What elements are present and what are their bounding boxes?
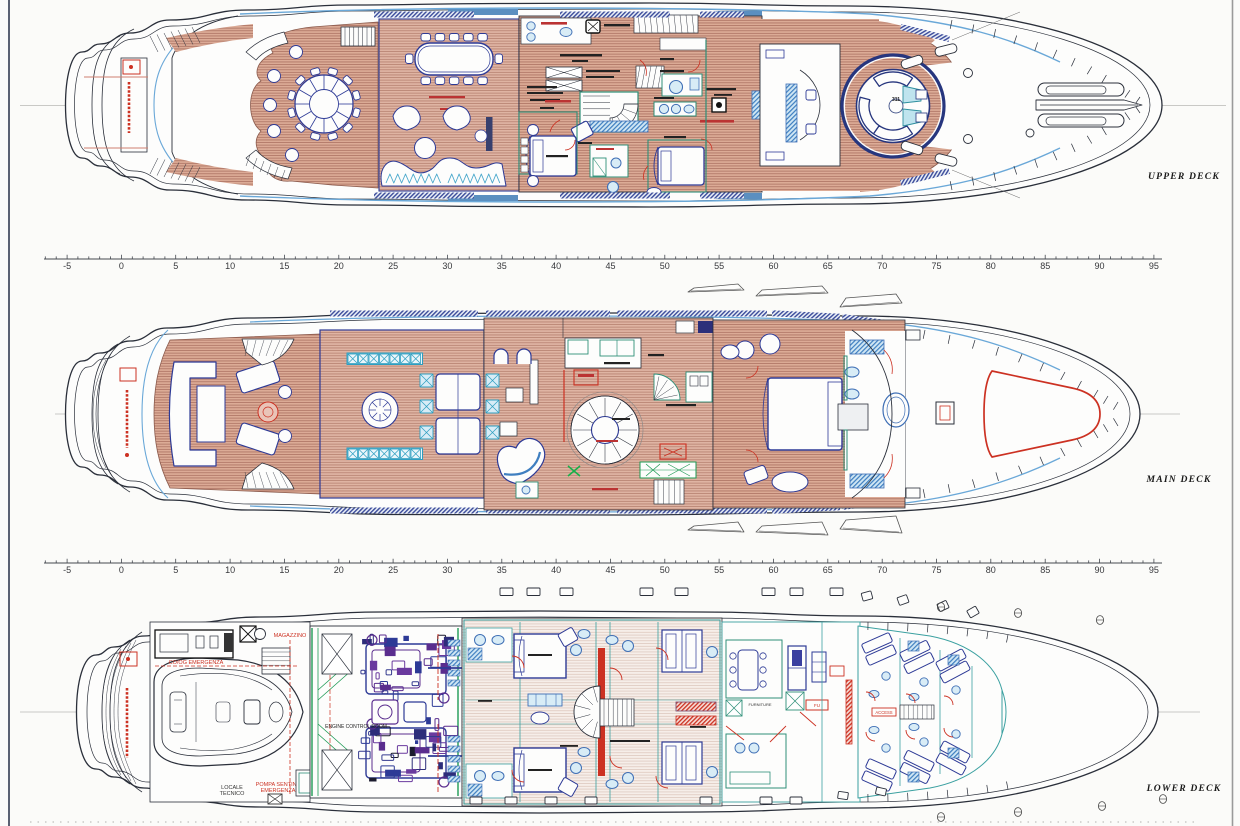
svg-text:15: 15 <box>279 261 289 271</box>
svg-text:-5: -5 <box>63 261 71 271</box>
svg-text:55: 55 <box>714 261 724 271</box>
svg-text:-5: -5 <box>63 565 71 575</box>
svg-text:ENGINE CONTROL ROOM: ENGINE CONTROL ROOM <box>325 724 387 730</box>
svg-text:50: 50 <box>660 261 670 271</box>
svg-text:40: 40 <box>551 565 561 575</box>
svg-text:35: 35 <box>497 565 507 575</box>
svg-text:MAIN DECK: MAIN DECK <box>1146 474 1212 485</box>
svg-text:60: 60 <box>768 261 778 271</box>
svg-text:45: 45 <box>605 565 615 575</box>
svg-text:80: 80 <box>986 565 996 575</box>
svg-text:25: 25 <box>388 261 398 271</box>
svg-text:85: 85 <box>1040 261 1050 271</box>
svg-text:15: 15 <box>279 565 289 575</box>
svg-text:30: 30 <box>442 565 452 575</box>
svg-text:CO/OG EMERGENZA: CO/OG EMERGENZA <box>169 660 224 666</box>
svg-text:95: 95 <box>1149 565 1159 575</box>
svg-text:20: 20 <box>334 261 344 271</box>
svg-text:75: 75 <box>931 565 941 575</box>
svg-text:TECNICO: TECNICO <box>220 791 245 797</box>
svg-text:311: 311 <box>892 97 900 103</box>
svg-text:95: 95 <box>1149 261 1159 271</box>
svg-text:FU: FU <box>814 703 820 708</box>
svg-text:0: 0 <box>119 261 124 271</box>
svg-text:30: 30 <box>442 261 452 271</box>
svg-text:65: 65 <box>823 261 833 271</box>
svg-text:60: 60 <box>768 565 778 575</box>
svg-text:65: 65 <box>823 565 833 575</box>
svg-text:0: 0 <box>119 565 124 575</box>
svg-text:55: 55 <box>714 565 724 575</box>
svg-text:70: 70 <box>877 261 887 271</box>
svg-text:40: 40 <box>551 261 561 271</box>
svg-text:10: 10 <box>225 565 235 575</box>
svg-text:80: 80 <box>986 261 996 271</box>
svg-text:45: 45 <box>605 261 615 271</box>
svg-text:25: 25 <box>388 565 398 575</box>
svg-text:LOWER DECK: LOWER DECK <box>1146 783 1222 794</box>
svg-text:70: 70 <box>877 565 887 575</box>
svg-text:10: 10 <box>225 261 235 271</box>
svg-text:50: 50 <box>660 565 670 575</box>
svg-text:90: 90 <box>1094 565 1104 575</box>
svg-text:EMERGENZA: EMERGENZA <box>261 788 296 794</box>
svg-text:35: 35 <box>497 261 507 271</box>
svg-text:MAGAZZINO: MAGAZZINO <box>274 633 307 639</box>
svg-text:FURNITURE: FURNITURE <box>748 702 771 707</box>
svg-text:90: 90 <box>1094 261 1104 271</box>
svg-text:ACCESS: ACCESS <box>875 710 892 715</box>
svg-text:UPPER DECK: UPPER DECK <box>1148 171 1220 182</box>
svg-text:85: 85 <box>1040 565 1050 575</box>
svg-text:75: 75 <box>931 261 941 271</box>
svg-text:5: 5 <box>173 565 178 575</box>
svg-text:5: 5 <box>173 261 178 271</box>
svg-text:20: 20 <box>334 565 344 575</box>
